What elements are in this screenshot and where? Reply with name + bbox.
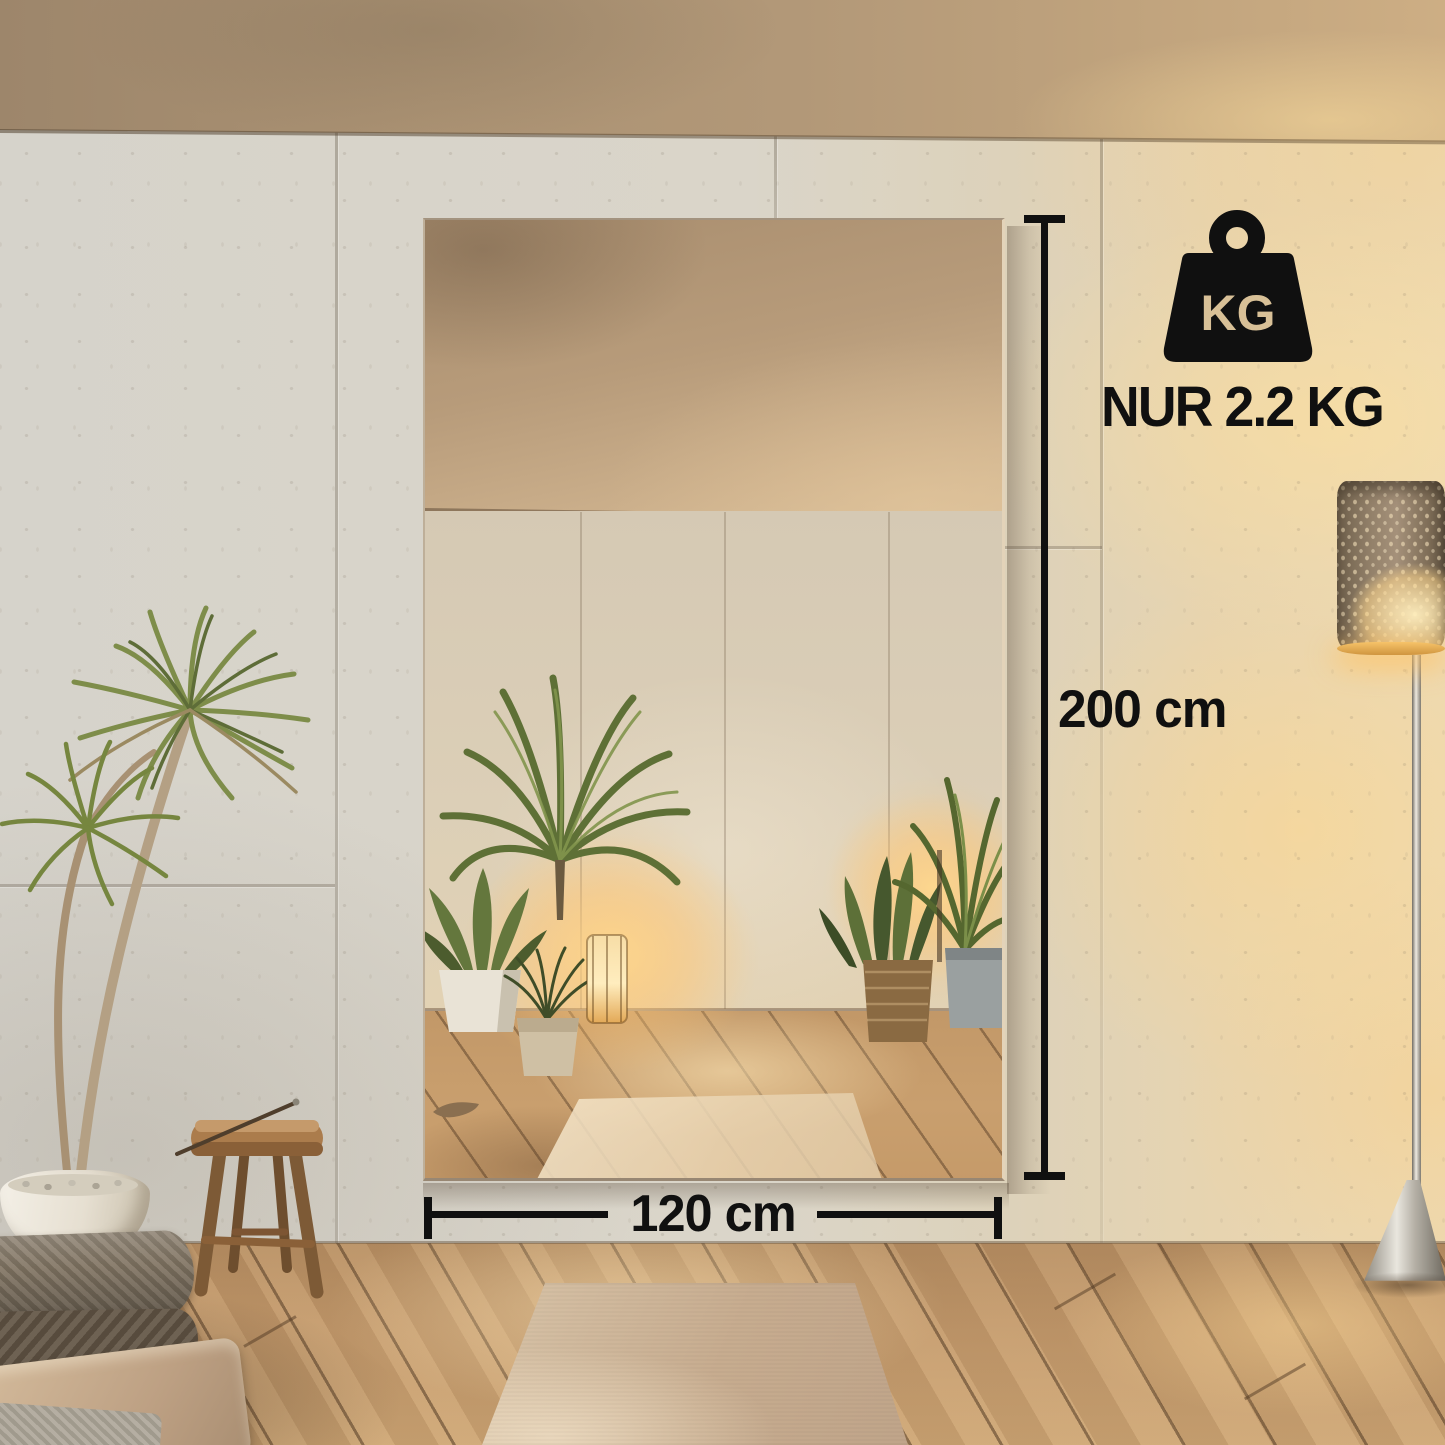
reflection-decor xyxy=(425,220,1005,1181)
lamp-glow-rim xyxy=(1337,642,1445,655)
height-dimension-label: 200 cm xyxy=(1058,683,1271,737)
weight-caption: NUR 2.2 KG xyxy=(1085,377,1399,437)
ceiling xyxy=(0,0,1445,152)
stool-legs xyxy=(201,1148,317,1292)
reflection-driftwood xyxy=(433,1102,479,1117)
lamp-pole xyxy=(1412,655,1421,1195)
width-dimension-cap-right xyxy=(994,1197,1002,1239)
stool-seat-highlight xyxy=(195,1120,319,1132)
height-dimension-cap-top xyxy=(1024,215,1065,223)
weight-icon-label: KG xyxy=(1201,285,1276,341)
weight-kg-icon: KG xyxy=(1156,204,1320,368)
height-dimension-cap-bottom xyxy=(1024,1172,1065,1180)
width-dimension-line-left xyxy=(427,1211,608,1218)
wall-seam-vertical-center xyxy=(774,134,777,220)
incense-ash-tip xyxy=(293,1099,300,1106)
reflection-sconce-stand xyxy=(937,850,942,962)
reflection-lantern-frame xyxy=(587,935,627,1023)
weight-icon-handle xyxy=(1218,219,1257,258)
floor-lamp-shade xyxy=(1337,481,1445,649)
width-dimension-cap-left xyxy=(424,1197,432,1239)
reflection-tan-pot-rim xyxy=(517,1018,579,1032)
width-dimension-line-right xyxy=(817,1211,1001,1218)
stool-seat-edge xyxy=(191,1142,323,1156)
wall-seam-vertical-right-lower xyxy=(1100,698,1103,1243)
reflection-grey-pot-rim xyxy=(945,948,1005,960)
product-photo-scene: 200 cm 120 cm KG NUR 2.2 KG xyxy=(0,0,1445,1445)
wooden-stool xyxy=(175,1090,340,1305)
wall-mirror xyxy=(423,218,1005,1181)
width-dimension-label: 120 cm xyxy=(611,1187,815,1241)
height-dimension-line xyxy=(1041,222,1048,1177)
